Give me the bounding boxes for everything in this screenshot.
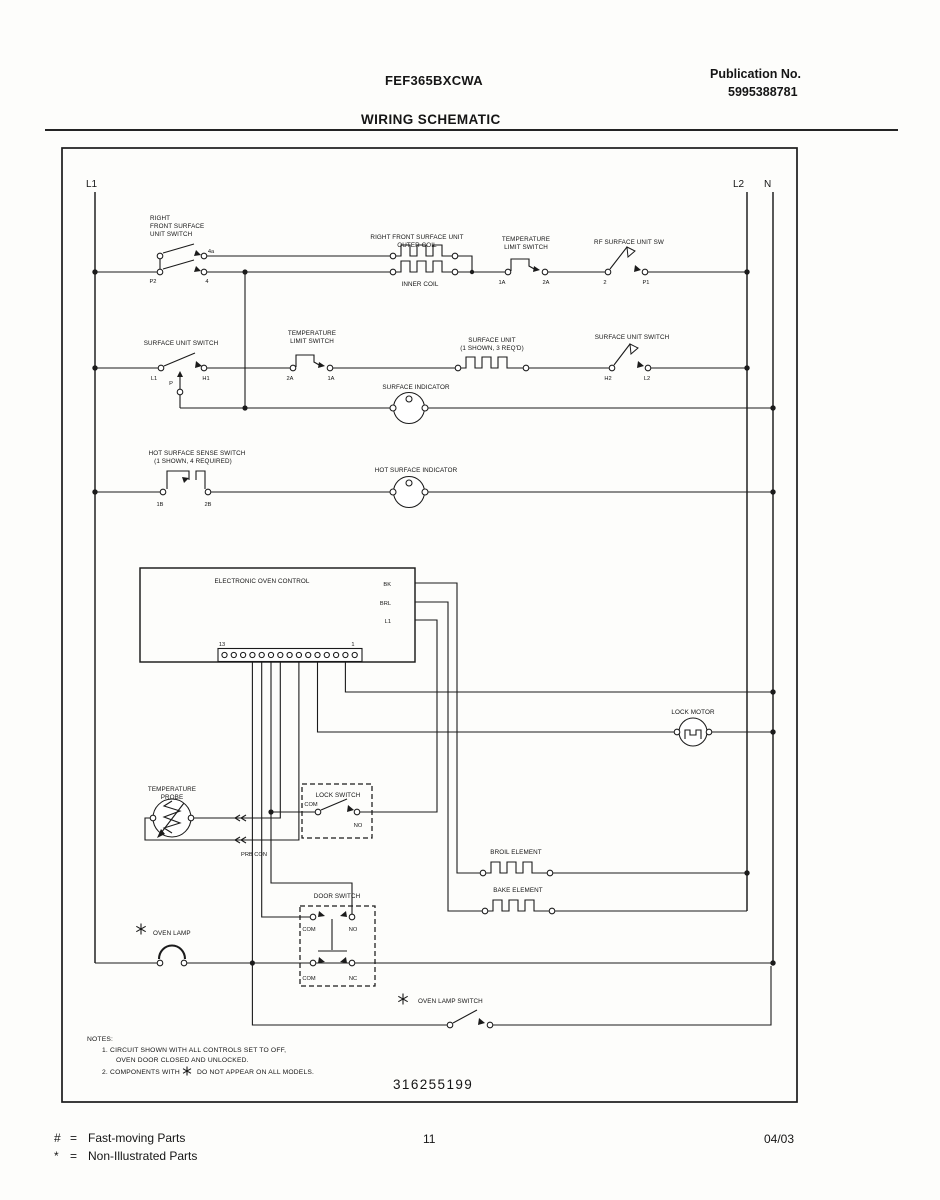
terminal-label: NO — [349, 927, 358, 933]
component-label: TEMPERATURE — [502, 236, 550, 243]
component-label: BROIL ELEMENT — [490, 849, 542, 856]
component-label: PROBE — [161, 794, 184, 801]
wire-label: BRL — [380, 601, 391, 607]
component-label: LIMIT SWITCH — [504, 244, 548, 251]
rail-label-n: N — [764, 179, 771, 190]
connector-label: PRB CON — [241, 852, 267, 858]
component-label: TEMPERATURE — [288, 330, 336, 337]
component-label: UNIT SWITCH — [150, 231, 193, 238]
page-number: 11 — [423, 1132, 435, 1146]
terminal-label: COM — [302, 976, 316, 982]
component-label: LOCK SWITCH — [316, 792, 361, 799]
hot-surface-sense-switch: HOT SURFACE SENSE SWITCH (1 SHOWN, 4 REQ… — [149, 450, 246, 508]
component-label: SURFACE UNIT — [468, 337, 515, 344]
component-label: RIGHT FRONT SURFACE UNIT — [370, 234, 463, 241]
component-label: RF SURFACE UNIT SW — [594, 239, 664, 246]
rf-surface-unit-switch: RF SURFACE UNIT SW 2 P1 — [594, 239, 664, 286]
note-line: OVEN DOOR CLOSED AND UNLOCKED. — [116, 1057, 249, 1064]
terminal-label: COM — [302, 927, 316, 933]
surface-indicator: SURFACE INDICATOR — [382, 384, 450, 424]
terminal-label: 2 — [603, 280, 606, 286]
lock-switch: LOCK SWITCH COM NO — [302, 784, 372, 838]
terminal-label: P2 — [150, 279, 157, 285]
component-label: SURFACE UNIT SWITCH — [595, 334, 670, 341]
wire-label: L1 — [385, 619, 391, 625]
document-page: FEF365BXCWA Publication No. 5995388781 W… — [0, 0, 940, 1200]
note-line: 2. COMPONENTS WITH — [102, 1069, 180, 1076]
terminal-label: 1A — [499, 280, 506, 286]
terminal-label: H1 — [202, 376, 209, 382]
pin-label: 13 — [219, 642, 225, 648]
terminal-label: L1 — [151, 376, 157, 382]
component-label: (1 SHOWN, 3 REQ'D) — [460, 345, 524, 352]
notes-heading: NOTES: — [87, 1036, 113, 1043]
terminal-label: P1 — [643, 280, 650, 286]
terminal-label: 4a — [208, 249, 215, 255]
component-label: OUTER COIL — [397, 242, 437, 249]
notes-block: NOTES: 1. CIRCUIT SHOWN WITH ALL CONTROL… — [87, 1036, 314, 1076]
note-line: DO NOT APPEAR ON ALL MODELS. — [197, 1069, 314, 1076]
component-label: RIGHT — [150, 215, 170, 222]
asterisk-icon — [398, 994, 407, 1005]
component-label: (1 SHOWN, 4 REQUIRED) — [154, 458, 232, 465]
component-label: OVEN LAMP — [153, 930, 191, 937]
rail-label-l1: L1 — [86, 179, 98, 190]
component-label: ELECTRONIC OVEN CONTROL — [214, 578, 309, 585]
terminal-label: 2A — [543, 280, 550, 286]
hash-symbol: # — [54, 1131, 70, 1145]
component-label: HOT SURFACE INDICATOR — [375, 467, 458, 474]
asterisk-icon — [183, 1067, 191, 1076]
component-label: OVEN LAMP SWITCH — [418, 998, 483, 1005]
terminal-label: L2 — [644, 376, 650, 382]
terminal-label: 1A — [328, 376, 335, 382]
temperature-limit-switch-1: TEMPERATURE LIMIT SWITCH 1A 2A — [499, 236, 551, 286]
terminal-label: P — [169, 381, 173, 387]
wiring-schematic: L1 L2 N — [0, 0, 940, 1200]
electronic-oven-control: ELECTRONIC OVEN CONTROL BK BRL L1 13 1 — [140, 568, 415, 662]
terminal-label: COM — [304, 802, 318, 808]
component-label: FRONT SURFACE — [150, 223, 204, 230]
note-line: 1. CIRCUIT SHOWN WITH ALL CONTROLS SET T… — [102, 1047, 286, 1054]
oven-lamp: OVEN LAMP — [136, 924, 190, 966]
component-label: LIMIT SWITCH — [290, 338, 334, 345]
surface-unit-switch-left: SURFACE UNIT SWITCH L1 P H1 — [144, 340, 219, 395]
component-label: TEMPERATURE — [148, 786, 196, 793]
rail-label-l2: L2 — [733, 179, 745, 190]
oven-lamp-switch: OVEN LAMP SWITCH — [398, 994, 493, 1028]
component-label: LOCK MOTOR — [671, 709, 715, 716]
date: 04/03 — [764, 1132, 794, 1146]
terminal-label: 2A — [287, 376, 294, 382]
asterisk-icon — [136, 924, 145, 935]
pin-label: 1 — [351, 642, 354, 648]
surface-unit-switch-right: SURFACE UNIT SWITCH H2 L2 — [595, 334, 670, 382]
terminal-label: H2 — [604, 376, 611, 382]
asterisk-symbol: * — [54, 1149, 70, 1163]
terminal-label: 4 — [205, 279, 208, 285]
component-label: HOT SURFACE SENSE SWITCH — [149, 450, 246, 457]
lock-motor: LOCK MOTOR — [671, 709, 715, 746]
component-label: INNER COIL — [401, 281, 438, 288]
terminal-label: 2B — [205, 502, 212, 508]
component-label: DOOR SWITCH — [314, 893, 361, 900]
part-number: 316255199 — [393, 1077, 473, 1092]
right-front-surface-unit-switch: RIGHT FRONT SURFACE UNIT SWITCH P2 4a 4 — [150, 215, 215, 285]
eoc-terminal-strip — [222, 652, 357, 657]
legend-non-illustrated: *=Non-Illustrated Parts — [54, 1149, 197, 1163]
component-label: BAKE ELEMENT — [493, 887, 543, 894]
component-label: SURFACE UNIT SWITCH — [144, 340, 219, 347]
probe-connector-icon — [235, 815, 246, 843]
terminal-label: NO — [354, 823, 363, 829]
legend-fast-moving: #=Fast-moving Parts — [54, 1131, 185, 1145]
terminal-label: NC — [349, 976, 357, 982]
terminal-label: 1B — [157, 502, 164, 508]
door-switch: DOOR SWITCH COM NO COM NC — [300, 893, 375, 986]
hot-surface-indicator: HOT SURFACE INDICATOR — [375, 467, 458, 508]
temperature-limit-switch-2: TEMPERATURE LIMIT SWITCH 2A 1A — [287, 330, 337, 382]
component-label: SURFACE INDICATOR — [382, 384, 450, 391]
wire-label: BK — [383, 582, 391, 588]
temperature-probe: TEMPERATURE PROBE PRB CON — [148, 786, 267, 858]
